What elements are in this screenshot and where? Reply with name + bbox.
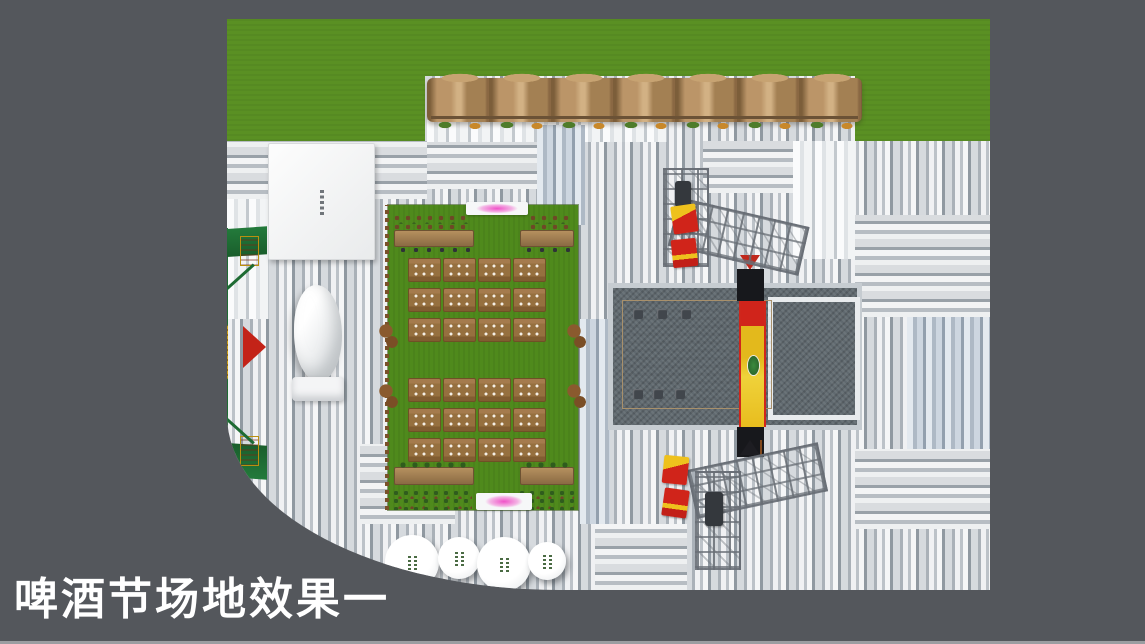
page-title: 啤酒节场地效果一 <box>14 575 390 625</box>
vendor-canopy <box>427 78 862 122</box>
arch-strut <box>227 263 255 300</box>
picnic-table <box>478 408 511 432</box>
long-counter-bottom-left <box>394 467 474 485</box>
picnic-table <box>478 378 511 402</box>
round-table-label <box>549 553 552 569</box>
barrel-cluster <box>378 323 400 349</box>
sculpture-body <box>294 285 342 381</box>
white-tent <box>268 143 375 260</box>
truss-sign <box>671 238 699 268</box>
pavement-tile <box>580 319 610 524</box>
picnic-table <box>443 288 476 312</box>
stage-speaker <box>675 389 685 399</box>
picnic-table <box>443 318 476 342</box>
pavement-tile <box>855 449 990 529</box>
picnic-table <box>513 258 546 282</box>
stage-speaker <box>657 309 667 319</box>
round-table-label <box>414 554 417 570</box>
picnic-table <box>408 438 441 462</box>
picnic-table <box>513 438 546 462</box>
long-counter-bottom-right <box>520 467 574 485</box>
tent-label-text <box>320 188 324 215</box>
picnic-table <box>478 258 511 282</box>
pavement-tile <box>855 215 990 317</box>
venue-render <box>227 19 990 590</box>
picnic-table <box>513 408 546 432</box>
grass-top-left <box>227 19 425 141</box>
hanging-speaker-top <box>675 181 691 207</box>
stage-speaker <box>633 389 643 399</box>
picnic-table <box>513 378 546 402</box>
stage-banner-wall <box>737 255 764 455</box>
round-table-label <box>455 550 458 566</box>
beer-garden-lawn <box>388 205 578 510</box>
stage-speaker <box>681 309 691 319</box>
pavement-tile <box>703 141 795 193</box>
stage-floor-frame <box>768 297 860 420</box>
stage-speaker <box>633 309 643 319</box>
entrance-arch <box>227 228 269 480</box>
barrel-cluster <box>378 383 400 409</box>
round-table-label <box>543 553 546 569</box>
barrel-cluster <box>566 383 588 409</box>
picnic-table <box>443 408 476 432</box>
picnic-table <box>408 318 441 342</box>
picnic-table <box>443 258 476 282</box>
inflatable-sculpture <box>290 285 347 407</box>
banner-pennant-bottom <box>740 440 760 455</box>
picnic-table <box>513 318 546 342</box>
round-table-label <box>461 550 464 566</box>
truss-sign <box>662 455 690 485</box>
sculpture-base <box>292 377 344 401</box>
hanging-speaker-bottom <box>705 492 723 526</box>
picnic-table <box>513 288 546 312</box>
pavement-tile <box>907 317 990 449</box>
truss-sign <box>661 487 690 518</box>
picnic-table <box>478 288 511 312</box>
picnic-table <box>478 438 511 462</box>
round-table-label <box>408 554 411 570</box>
lawn-banner-bottom <box>476 493 532 510</box>
picnic-table <box>408 378 441 402</box>
truss-sign <box>670 203 699 234</box>
round-table <box>385 535 439 589</box>
arch-sign-top <box>240 236 259 266</box>
round-table <box>477 537 531 590</box>
arch-gold-logo <box>227 323 228 381</box>
picnic-table <box>443 378 476 402</box>
round-table-label <box>500 556 503 572</box>
picnic-table <box>443 438 476 462</box>
picnic-table <box>478 318 511 342</box>
picnic-table <box>408 258 441 282</box>
round-table-label <box>506 556 509 572</box>
stage-speaker <box>653 389 663 399</box>
round-table <box>438 537 480 579</box>
grass-top-right <box>855 19 990 141</box>
banner-backdrop <box>739 301 766 427</box>
picnic-table <box>408 288 441 312</box>
slide: 啤酒节场地效果一 <box>0 0 1145 644</box>
picnic-table <box>408 408 441 432</box>
arch-red-flag <box>243 326 266 368</box>
pavement-tile <box>595 524 687 590</box>
chair-row-bottom-left <box>392 489 472 510</box>
beer-brand-logo <box>748 356 759 375</box>
round-table <box>528 542 566 580</box>
speaker-stack-top <box>737 269 764 301</box>
pavement-tile <box>427 141 547 189</box>
barrel-cluster <box>566 323 588 349</box>
